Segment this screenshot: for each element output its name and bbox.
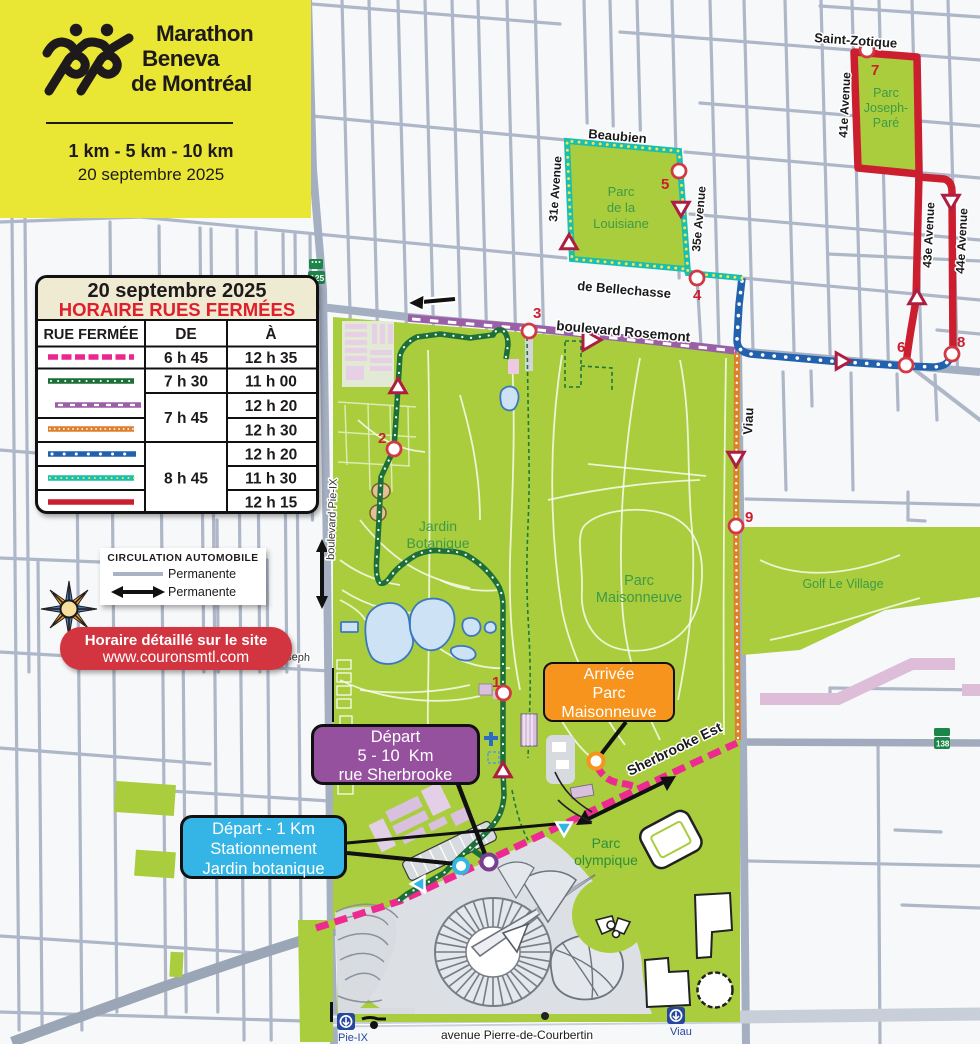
svg-text:Jardin: Jardin xyxy=(419,518,457,534)
svg-text:Marathon: Marathon xyxy=(156,21,253,46)
svg-text:12 h 20: 12 h 20 xyxy=(245,447,298,464)
svg-text:1 km - 5 km - 10 km: 1 km - 5 km - 10 km xyxy=(68,141,233,161)
svg-text:Golf Le Village: Golf Le Village xyxy=(802,577,883,591)
svg-text:11 h 30: 11 h 30 xyxy=(245,471,297,488)
svg-text:Beneva: Beneva xyxy=(142,46,220,71)
svg-text:CIRCULATION AUTOMOBILE: CIRCULATION AUTOMOBILE xyxy=(107,553,258,564)
svg-text:6: 6 xyxy=(897,339,905,356)
svg-text:Maisonneuve: Maisonneuve xyxy=(596,590,682,606)
svg-text:de Montréal: de Montréal xyxy=(131,71,252,96)
svg-text:DE: DE xyxy=(175,326,197,343)
svg-text:Paré: Paré xyxy=(873,116,899,130)
svg-text:6 h 45: 6 h 45 xyxy=(164,350,208,367)
svg-text:12 h 20: 12 h 20 xyxy=(245,398,298,415)
svg-text:Botanique: Botanique xyxy=(406,535,469,551)
svg-text:4: 4 xyxy=(693,287,702,304)
svg-text:138: 138 xyxy=(936,740,950,749)
svg-text:olympique: olympique xyxy=(574,852,638,868)
svg-text:12 h 15: 12 h 15 xyxy=(245,495,298,512)
svg-text:11 h 00: 11 h 00 xyxy=(245,374,297,391)
svg-text:8: 8 xyxy=(957,334,965,351)
svg-text:de la: de la xyxy=(607,200,636,215)
svg-text:2: 2 xyxy=(378,430,386,447)
svg-text:Louisiane: Louisiane xyxy=(593,216,649,231)
svg-text:1: 1 xyxy=(492,674,500,691)
svg-text:7 h 30: 7 h 30 xyxy=(164,374,208,391)
svg-text:5: 5 xyxy=(661,176,669,193)
svg-text:Joseph-: Joseph- xyxy=(864,101,908,115)
svg-text:HORAIRE RUES FERMÉES: HORAIRE RUES FERMÉES xyxy=(59,299,295,320)
svg-text:7: 7 xyxy=(871,62,879,79)
svg-text:avenue Pierre-de-Courbertin: avenue Pierre-de-Courbertin xyxy=(441,1028,593,1042)
svg-text:Viau: Viau xyxy=(670,1026,692,1038)
svg-text:À: À xyxy=(265,326,276,343)
svg-text:9: 9 xyxy=(745,509,753,526)
svg-text:3: 3 xyxy=(533,305,541,322)
svg-text:12 h 35: 12 h 35 xyxy=(245,350,298,367)
svg-text:Parc: Parc xyxy=(873,86,899,100)
svg-text:Parc: Parc xyxy=(624,573,654,589)
svg-text:Parc: Parc xyxy=(592,835,621,851)
svg-text:Viau: Viau xyxy=(740,407,756,435)
svg-text:20 septembre 2025: 20 septembre 2025 xyxy=(78,165,225,184)
svg-text:Pie-IX: Pie-IX xyxy=(338,1032,369,1044)
svg-text:7 h 45: 7 h 45 xyxy=(164,410,208,427)
svg-text:12 h 30: 12 h 30 xyxy=(245,423,298,440)
svg-text:Permanente: Permanente xyxy=(168,585,236,599)
svg-text:8 h 45: 8 h 45 xyxy=(164,471,208,488)
svg-text:Parc: Parc xyxy=(608,184,635,199)
svg-text:Permanente: Permanente xyxy=(168,567,236,581)
svg-text:RUE FERMÉE: RUE FERMÉE xyxy=(43,326,138,343)
